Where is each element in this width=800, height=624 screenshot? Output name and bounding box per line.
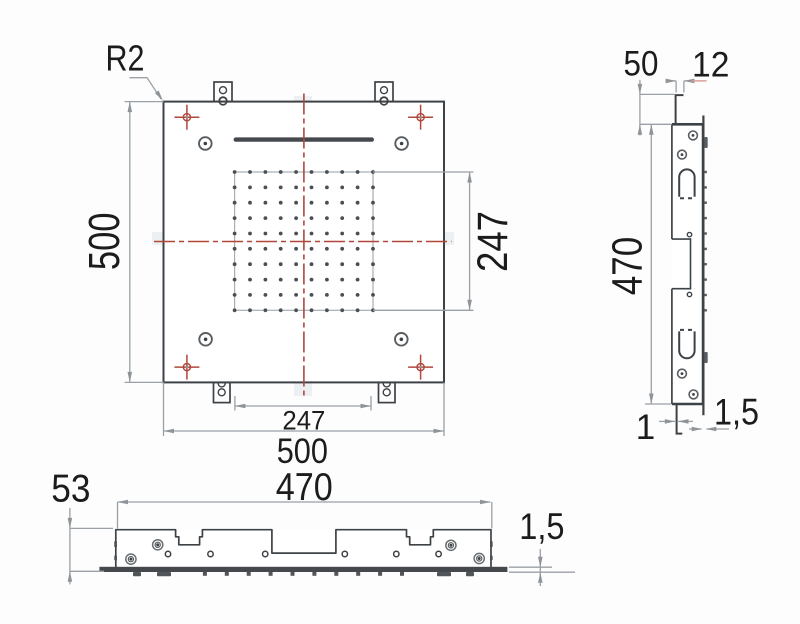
svg-text:470: 470	[276, 466, 333, 509]
svg-text:R2: R2	[106, 38, 145, 79]
svg-text:50: 50	[624, 44, 659, 83]
svg-text:53: 53	[51, 468, 90, 511]
svg-text:12: 12	[692, 46, 729, 85]
svg-text:470: 470	[604, 237, 651, 295]
svg-text:1: 1	[636, 408, 655, 447]
svg-text:1,5: 1,5	[519, 505, 564, 547]
svg-text:247: 247	[469, 211, 517, 272]
svg-text:1,5: 1,5	[714, 391, 759, 433]
svg-text:500: 500	[80, 212, 129, 270]
